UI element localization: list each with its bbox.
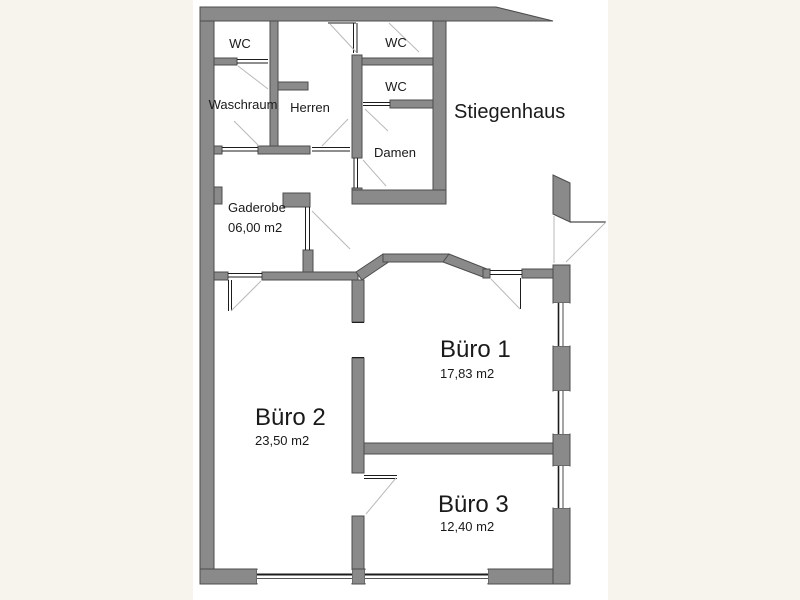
wall-buero-divider-b xyxy=(352,358,364,473)
wall-buero1-top-b xyxy=(483,269,490,278)
wall-corridor-a xyxy=(214,272,228,280)
wall-wc-tl-bottom xyxy=(214,58,237,65)
window-right-1 xyxy=(554,303,570,346)
label-buero2: Büro 2 xyxy=(255,404,326,431)
wall-right-block-3 xyxy=(553,434,570,466)
floor-plan: WC Waschraum Herren WC WC Damen Stiegenh… xyxy=(0,0,800,600)
window-right-3 xyxy=(554,466,570,508)
label-damen: Damen xyxy=(374,145,416,160)
window-bottom-1 xyxy=(257,570,352,583)
label-buero1: Büro 1 xyxy=(440,336,511,363)
wall-wc-divider xyxy=(362,58,433,65)
label-wc-top-left: WC xyxy=(229,36,251,51)
floor-plan-page: WC Waschraum Herren WC WC Damen Stiegenh… xyxy=(0,0,800,600)
label-gaderobe: Gaderobe xyxy=(228,200,286,215)
wall-gaderobe-right xyxy=(303,250,313,272)
window-bottom-2 xyxy=(365,570,488,583)
wall-washroom-bottom-b xyxy=(258,146,310,154)
label-buero1-area: 17,83 m2 xyxy=(440,366,494,381)
label-buero3-area: 12,40 m2 xyxy=(440,519,494,534)
label-buero3: Büro 3 xyxy=(438,491,509,518)
wall-right-block-4 xyxy=(553,508,570,584)
wall-left-notch xyxy=(214,187,222,204)
window-right-2 xyxy=(554,391,570,434)
wall-buero1-top xyxy=(383,254,449,262)
wall-corridor-b xyxy=(262,272,358,280)
wall-herren-stub xyxy=(278,82,308,90)
label-buero2-area: 23,50 m2 xyxy=(255,433,309,448)
label-stiegenhaus: Stiegenhaus xyxy=(454,101,565,123)
wall-buero1-buero3 xyxy=(364,443,553,454)
wall-left xyxy=(200,7,214,584)
wall-buero-divider-c xyxy=(352,516,364,569)
wall-buero1-top-c xyxy=(522,269,553,278)
wall-entrance-jamb xyxy=(553,175,570,222)
wall-buero-divider-a xyxy=(352,280,364,322)
wall-right-block-2 xyxy=(553,346,570,391)
wall-top-tapered xyxy=(200,7,553,21)
label-wc-right-upper: WC xyxy=(385,35,407,50)
wall-herren-left xyxy=(270,21,278,146)
wall-herren-right xyxy=(352,55,362,158)
wall-bottom-left xyxy=(200,569,257,584)
wall-right-block-1 xyxy=(553,265,570,303)
label-waschraum: Waschraum xyxy=(209,97,278,112)
label-wc-right-lower: WC xyxy=(385,79,407,94)
wall-damen-bottom xyxy=(352,190,446,204)
wall-washroom-bottom-a xyxy=(214,146,222,154)
label-gaderobe-area: 06,00 m2 xyxy=(228,220,282,235)
label-herren: Herren xyxy=(290,100,330,115)
wall-bottom-pier xyxy=(352,569,365,584)
wall-wc-damen xyxy=(390,100,433,108)
wall-stair-left xyxy=(433,21,446,204)
wall-corridor-stub xyxy=(283,193,310,207)
